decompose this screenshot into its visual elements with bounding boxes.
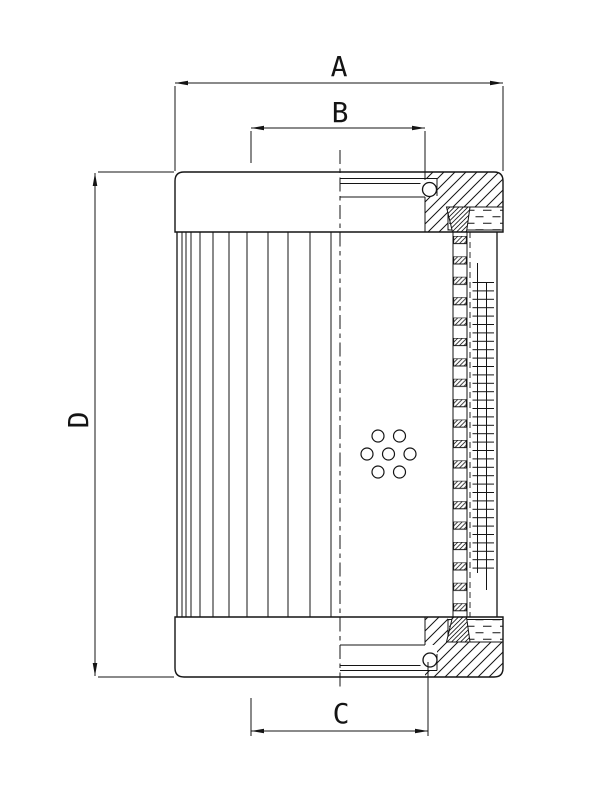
- top-end-cap: [175, 172, 503, 232]
- mesh-rows: [473, 282, 495, 574]
- dim-a-arrow-right: [490, 81, 503, 86]
- dim-b-arrow-left: [251, 126, 264, 131]
- pleat-lines: [182, 232, 331, 617]
- top-cap-hatch-left: [425, 207, 448, 232]
- dim-b-arrow-right: [412, 126, 425, 131]
- dimension-b: B: [251, 96, 425, 180]
- media-blocks: [454, 236, 467, 612]
- dim-d-arrow-bottom: [93, 663, 98, 676]
- filter-body: [177, 150, 497, 691]
- bottom-end-cap: [175, 617, 503, 677]
- dim-d-arrow-top: [93, 173, 98, 186]
- dim-d-label: D: [62, 412, 95, 429]
- dim-a-label: A: [331, 50, 348, 83]
- dimension-d: D: [62, 172, 174, 677]
- media-column: [453, 232, 467, 617]
- dim-c-label: C: [333, 697, 350, 730]
- bottom-cap-hatch-left: [425, 617, 448, 642]
- perforation-holes: [361, 430, 416, 478]
- top-o-ring: [423, 183, 437, 197]
- dim-c-arrow-right: [415, 729, 428, 734]
- drawing-canvas: A B C D: [0, 0, 612, 792]
- dim-c-arrow-left: [251, 729, 264, 734]
- filter-element-section-drawing: A B C D: [0, 0, 612, 792]
- support-mesh: [473, 263, 495, 590]
- bottom-o-ring: [423, 653, 437, 667]
- dim-b-label: B: [332, 96, 349, 129]
- dim-a-arrow-left: [175, 81, 188, 86]
